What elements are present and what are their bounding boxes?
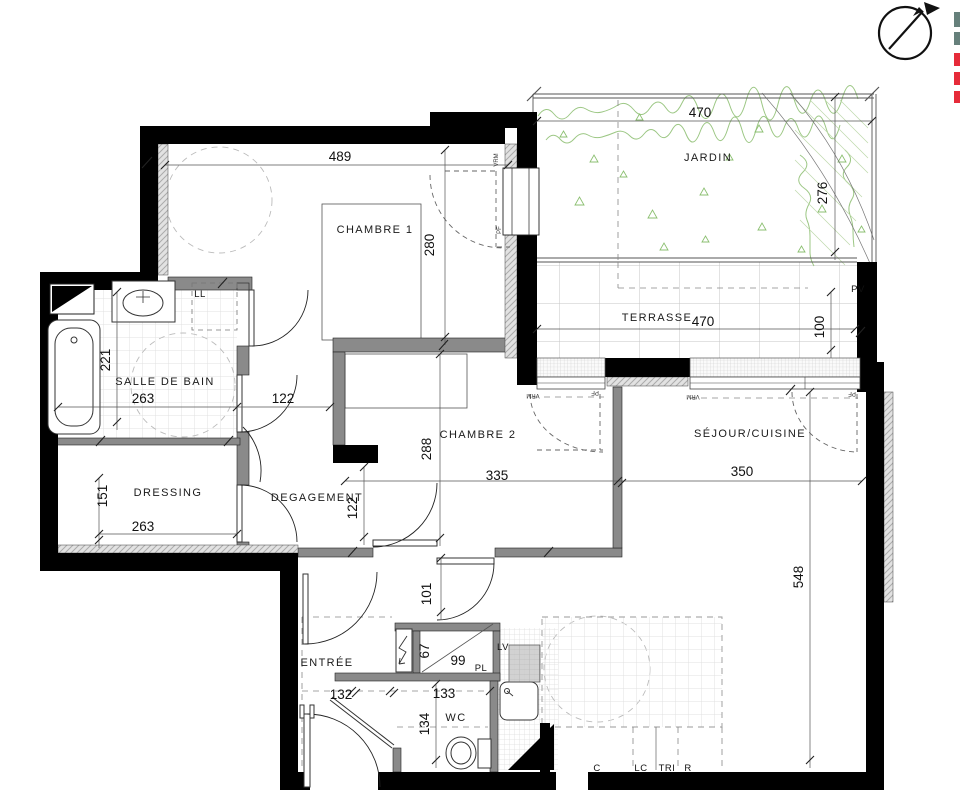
label-kitchen-r: R [684, 763, 691, 774]
dishwasher [509, 645, 540, 682]
room-label-salle-de-bain: SALLE DE BAIN [115, 376, 215, 388]
label-dishwasher: LV [497, 642, 509, 653]
dim-sejour-width: 350 [731, 464, 754, 479]
kitchen-zone [542, 617, 722, 770]
dim-dressing-height: 151 [95, 485, 110, 508]
dim-wc-height: 134 [417, 712, 432, 735]
label-kitchen-tri: TRI [659, 763, 676, 774]
dim-sdb-door: 122 [272, 391, 295, 406]
kitchen-counter-dashed [542, 617, 722, 727]
dim-terrasse-width: 470 [692, 314, 715, 329]
turning-circle-chambre1 [166, 147, 272, 253]
dim-entree-width: 132 [330, 687, 353, 702]
interior-walls [48, 144, 893, 772]
garden-path-curve-1 [762, 93, 872, 268]
wardrobe-chambre2 [345, 354, 467, 408]
kitchen-sink [500, 682, 538, 720]
dim-placard-width: 99 [450, 653, 465, 668]
dim-chambre2-width: 335 [486, 468, 509, 483]
legend-swatch-gray-1 [954, 12, 960, 27]
label-washing-machine: LL [194, 289, 206, 300]
label-pf-facade-left: PF [591, 389, 599, 395]
terrace-tile-floor [537, 262, 857, 358]
dim-chambre1-width: 489 [329, 149, 352, 164]
dim-sdb-height: 221 [98, 349, 113, 372]
label-vrm-facade-right: VRM [686, 393, 699, 399]
dim-terrasse-height: 100 [812, 316, 827, 339]
label-placard: PL [475, 663, 488, 674]
window-chambre1 [503, 168, 539, 235]
label-pv: PV [851, 284, 865, 295]
window-sejour-facade [690, 358, 860, 377]
label-kitchen-c: C [593, 763, 600, 774]
dim-dressing-width: 263 [132, 519, 155, 534]
window-chambre2-facade [537, 358, 605, 377]
legend-swatch-red-3 [954, 91, 960, 103]
dim-sejour-height: 548 [791, 566, 806, 589]
dim-passage: 101 [419, 583, 434, 606]
room-label-dressing: DRESSING [134, 487, 203, 499]
room-label-jardin: JARDIN [684, 152, 732, 164]
dim-chambre2-height: 288 [419, 438, 434, 461]
label-pf-facade-right: PF [848, 390, 856, 396]
dim-chambre1-height: 280 [422, 234, 437, 257]
toilet-tank [478, 739, 491, 768]
dim-sdb-width: 263 [132, 391, 155, 406]
legend-swatches [954, 12, 960, 103]
dim-jardin-width: 470 [689, 105, 712, 120]
room-label-wc: WC [445, 712, 466, 724]
room-label-chambre2: CHAMBRE 2 [440, 429, 517, 441]
room-label-sejour-cuisine: SÉJOUR/CUISINE [694, 427, 806, 440]
room-label-chambre1: CHAMBRE 1 [337, 224, 414, 236]
dim-degagement-width: 122 [345, 497, 360, 520]
room-label-terrasse: TERRASSE [622, 312, 693, 324]
label-kitchen-lc: LC [634, 763, 647, 774]
dim-jardin-height: 276 [815, 182, 830, 205]
floor-plan: CHAMBRE 1 JARDIN TERRASSE SALLE DE BAIN … [0, 0, 960, 800]
label-vrm-facade-left: VRM [526, 392, 539, 398]
legend-swatch-gray-2 [954, 32, 960, 45]
dim-placard-depth: 67 [417, 643, 432, 658]
dim-wc-width: 133 [433, 686, 456, 701]
wc-door-leaf [330, 697, 394, 748]
room-label-entree: ENTRÉE [300, 656, 353, 669]
north-compass-icon [879, 2, 940, 59]
label-vrm-window1: VRM [494, 153, 500, 166]
legend-swatch-red-2 [954, 72, 960, 85]
legend-swatch-red-1 [954, 53, 960, 66]
label-pf-window1: PF [497, 226, 503, 234]
